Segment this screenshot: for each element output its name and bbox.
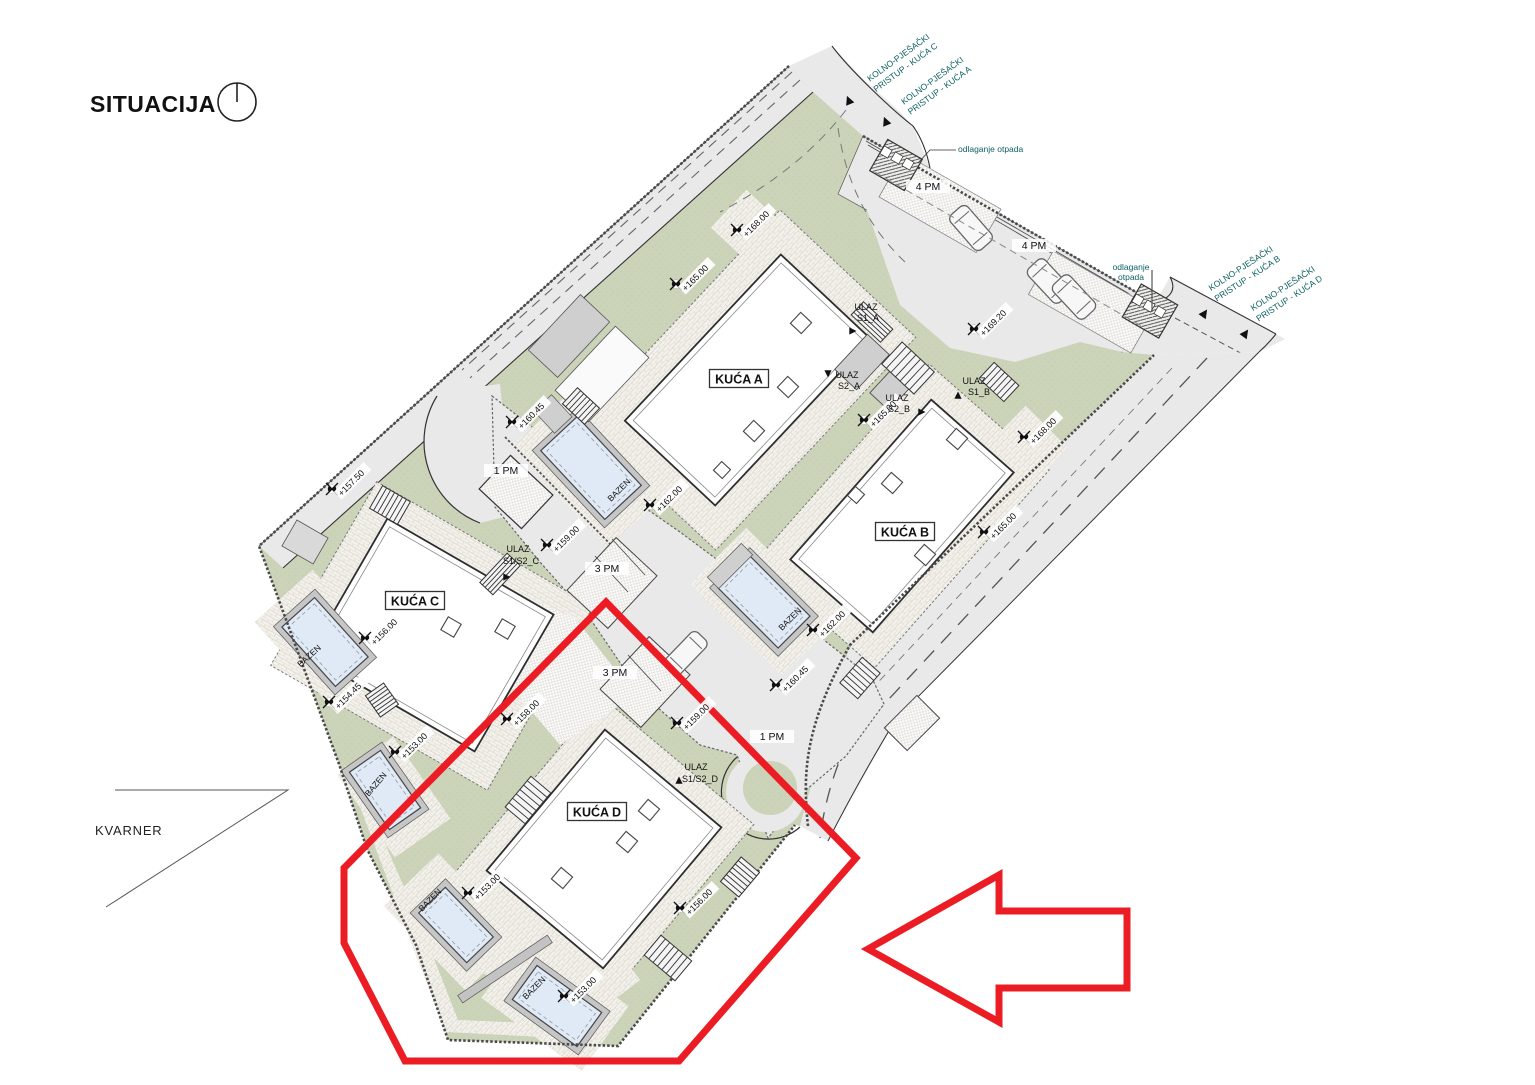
svg-text:KVARNER: KVARNER (95, 823, 162, 838)
svg-text:odlaganje: odlaganje (1113, 262, 1150, 272)
svg-text:ULAZ: ULAZ (835, 370, 859, 380)
svg-text:4 PM: 4 PM (916, 181, 941, 193)
svg-text:SITUACIJA: SITUACIJA (90, 91, 216, 117)
svg-text:ULAZ: ULAZ (854, 302, 878, 312)
svg-text:S1/S2_D: S1/S2_D (682, 774, 719, 784)
svg-text:3 PM: 3 PM (595, 563, 620, 575)
svg-text:ULAZ: ULAZ (885, 393, 909, 403)
svg-text:KUĆA B: KUĆA B (881, 525, 929, 540)
svg-text:1 PM: 1 PM (760, 731, 785, 743)
svg-text:KUĆA C: KUĆA C (391, 594, 439, 609)
svg-text:4 PM: 4 PM (1022, 240, 1047, 252)
svg-text:ULAZ: ULAZ (684, 762, 708, 772)
svg-text:3 PM: 3 PM (603, 667, 628, 679)
svg-text:S1_B: S1_B (968, 387, 990, 397)
svg-text:otpada: otpada (1118, 272, 1144, 282)
svg-text:S2_A: S2_A (838, 381, 860, 391)
svg-text:odlaganje otpada: odlaganje otpada (958, 144, 1024, 154)
svg-text:ULAZ: ULAZ (506, 544, 530, 554)
svg-text:S1_A: S1_A (857, 313, 879, 323)
svg-text:KUĆA A: KUĆA A (715, 372, 763, 387)
svg-text:ULAZ: ULAZ (962, 376, 986, 386)
svg-text:KUĆA D: KUĆA D (573, 805, 621, 820)
svg-text:S2_B: S2_B (888, 404, 910, 414)
svg-text:1 PM: 1 PM (494, 465, 519, 477)
svg-text:S1/S2_C: S1/S2_C (503, 556, 540, 566)
